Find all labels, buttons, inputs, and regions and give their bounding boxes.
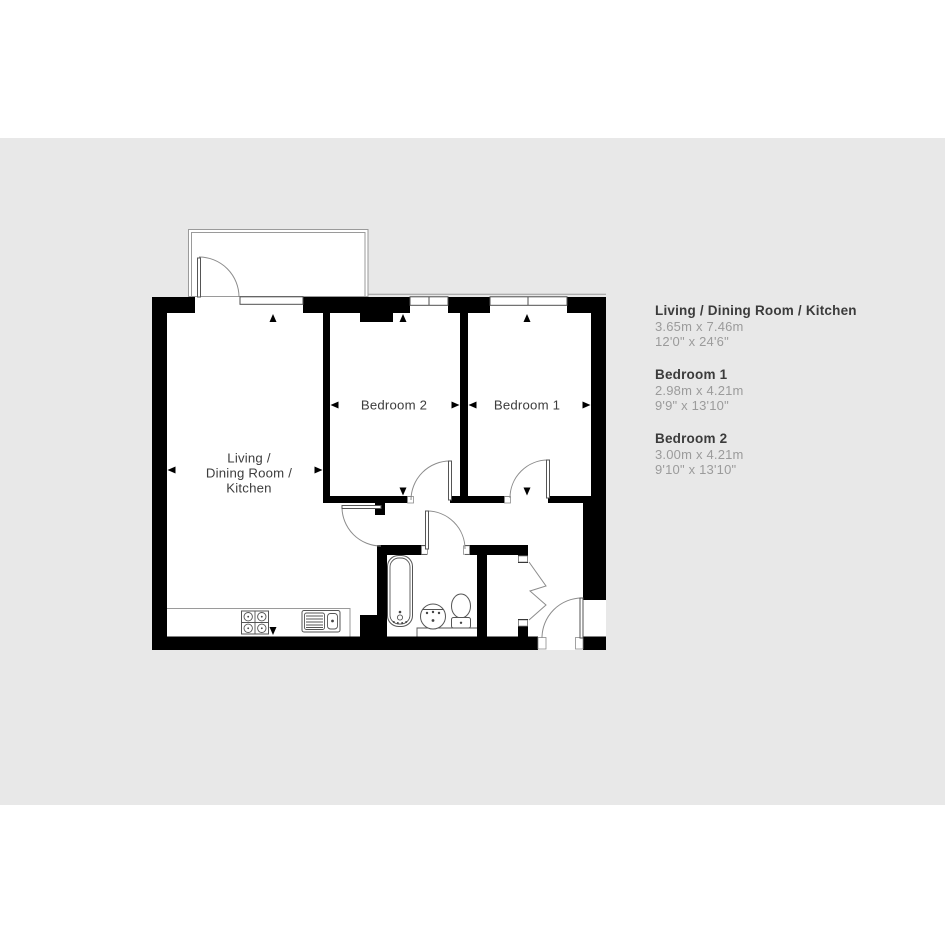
- balcony-window: [240, 297, 303, 305]
- legend-entry-bedroom1: Bedroom 1 2.98m x 4.21m 9'9" x 13'10": [655, 367, 895, 413]
- legend-imperial-dimensions: 9'9" x 13'10": [655, 398, 895, 413]
- bathtub: [388, 556, 413, 627]
- living-room-label-line1: Living /: [227, 451, 271, 466]
- bedroom2-label: Bedroom 2: [361, 398, 427, 413]
- legend-room-name: Bedroom 1: [655, 367, 895, 383]
- legend-imperial-dimensions: 9'10" x 13'10": [655, 462, 895, 477]
- legend-room-name: Bedroom 2: [655, 431, 895, 447]
- legend-room-name: Living / Dining Room / Kitchen: [655, 303, 895, 319]
- legend-entry-bedroom2: Bedroom 2 3.00m x 4.21m 9'10" x 13'10": [655, 431, 895, 477]
- legend-metric-dimensions: 3.65m x 7.46m: [655, 319, 895, 334]
- kitchen-hob: [242, 611, 269, 634]
- legend-imperial-dimensions: 12'0" x 24'6": [655, 334, 895, 349]
- kitchen-sink: [302, 611, 340, 633]
- legend-metric-dimensions: 2.98m x 4.21m: [655, 383, 895, 398]
- legend-entry-living: Living / Dining Room / Kitchen 3.65m x 7…: [655, 303, 895, 349]
- floorplan-page: Living / Dining Room / Kitchen Bedroom 2…: [0, 0, 945, 945]
- living-room-label-line3: Kitchen: [226, 481, 271, 496]
- toilet: [452, 594, 471, 628]
- balcony: [189, 230, 369, 297]
- bedroom1-window: [490, 297, 567, 306]
- bedroom2-window: [410, 297, 448, 306]
- room-dimensions-legend: Living / Dining Room / Kitchen 3.65m x 7…: [655, 303, 895, 495]
- legend-metric-dimensions: 3.00m x 4.21m: [655, 447, 895, 462]
- wash-basin: [421, 604, 446, 629]
- living-room-label-line2: Dining Room /: [206, 466, 292, 481]
- bedroom1-label: Bedroom 1: [494, 398, 560, 413]
